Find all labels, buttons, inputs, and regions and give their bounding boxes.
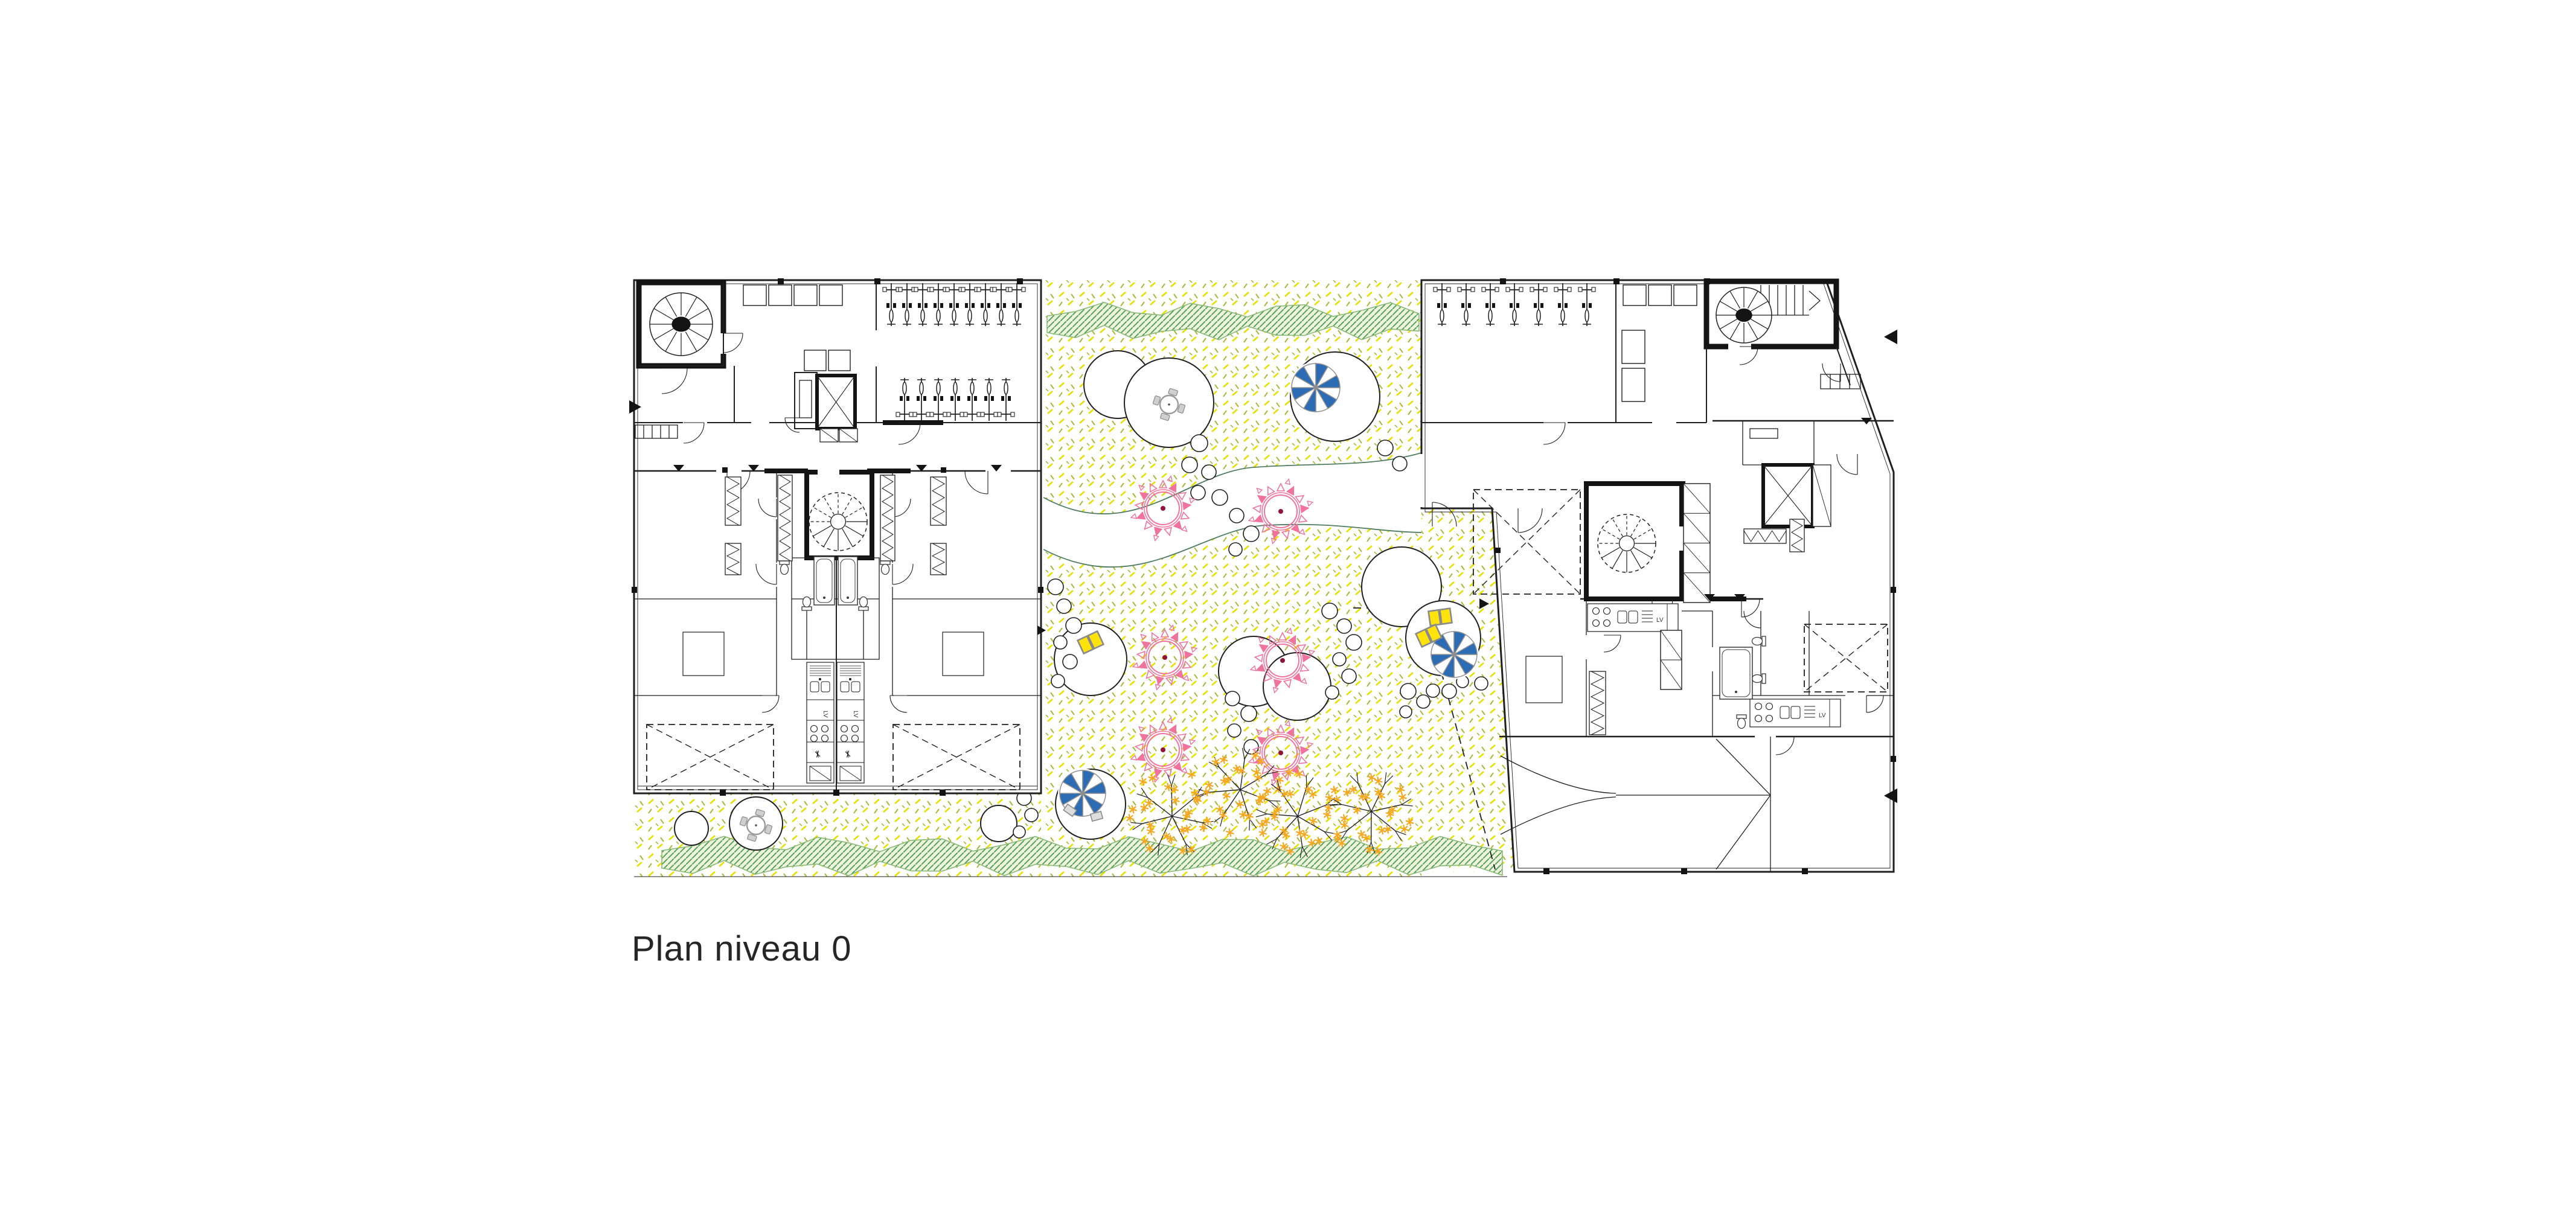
kitchen-icon: LV <box>1588 604 1678 632</box>
left-building: LVLV <box>632 278 1043 796</box>
elevator-icon <box>817 376 855 429</box>
bush-icon <box>1417 695 1430 708</box>
kitchen-icon: LV <box>1750 699 1841 727</box>
toilet-icon <box>780 561 789 575</box>
bush-icon <box>1337 619 1351 633</box>
spiral-staircase-icon <box>809 493 867 551</box>
bush-icon <box>1241 706 1257 721</box>
storage-box <box>1622 368 1645 401</box>
bed <box>1526 656 1562 703</box>
bush-icon <box>1013 826 1025 838</box>
bush-icon <box>1229 508 1244 523</box>
wardrobe-icon <box>1790 519 1804 552</box>
toilet-icon <box>1737 715 1746 729</box>
bush-icon <box>1325 686 1339 699</box>
parasol-icon <box>1290 362 1342 414</box>
page: LVLV <box>0 0 2576 1225</box>
storage-box <box>819 285 842 305</box>
bathtub-icon <box>1720 647 1752 699</box>
bush-icon <box>1377 440 1393 456</box>
kitchen-icon: LV <box>837 662 864 783</box>
bush-icon <box>1212 490 1228 505</box>
section-arrow-icon <box>1884 330 1897 344</box>
toilet-icon <box>880 561 890 575</box>
storage-box <box>743 285 766 305</box>
kitchen-label: LV <box>852 711 859 718</box>
bush-icon <box>1229 543 1242 556</box>
wardrobe-icon <box>1744 529 1786 543</box>
storage-box <box>769 285 792 305</box>
bed <box>943 632 984 676</box>
elevator-icon <box>1763 465 1813 526</box>
storage-box <box>1623 285 1646 305</box>
kitchen-icon: LV <box>807 662 834 783</box>
wardrobe-icon <box>931 543 946 575</box>
bush-icon <box>1225 691 1240 706</box>
spiral-staircase-icon <box>1598 514 1656 572</box>
bush-icon <box>1063 654 1077 669</box>
bush-icon <box>1392 456 1407 471</box>
toilet-icon <box>802 597 812 611</box>
wardrobe-icon <box>931 477 946 525</box>
bush-icon <box>1322 603 1338 619</box>
bush-icon <box>1025 808 1038 822</box>
bed <box>683 632 724 676</box>
bush-icon <box>1054 636 1067 649</box>
bush-icon <box>1051 674 1065 688</box>
bush-icon <box>1182 457 1197 473</box>
bush-icon <box>1400 706 1412 718</box>
bush-icon <box>1057 599 1071 613</box>
wardrobe-icon <box>725 543 741 575</box>
toilet-icon <box>1752 674 1766 683</box>
kitchen-label: LV <box>1656 617 1664 624</box>
bench-icon <box>1429 609 1452 626</box>
bush-icon <box>1191 485 1205 500</box>
bush-icon <box>1475 677 1488 690</box>
wardrobe-icon <box>1589 671 1606 735</box>
tree-canopy-icon <box>1263 653 1331 720</box>
wardrobe-icon <box>725 477 741 525</box>
bathtub-icon <box>814 557 835 605</box>
bush-icon <box>1346 635 1362 650</box>
storage-box <box>1648 285 1671 305</box>
storage-box <box>794 285 817 305</box>
tree-canopy-icon <box>674 811 708 845</box>
shelf-closet-icon <box>1684 484 1710 603</box>
wardrobe-icon <box>880 475 895 561</box>
kitchen-label: LV <box>822 711 828 718</box>
storage-box <box>1622 330 1645 363</box>
bush-icon <box>1342 669 1356 683</box>
storage-box <box>804 350 826 371</box>
bush-icon <box>1066 618 1081 633</box>
bush-icon <box>1191 435 1208 452</box>
bush-icon <box>1243 526 1259 542</box>
bush-icon <box>1400 683 1416 699</box>
storage-box <box>1674 285 1697 305</box>
bush-icon <box>1333 653 1346 666</box>
floor-plan-drawing: LVLV <box>626 273 1912 883</box>
storage-box <box>828 350 850 371</box>
bush-icon <box>1048 579 1063 595</box>
bush-icon <box>1228 724 1241 737</box>
bush-icon <box>1442 684 1456 699</box>
spiral-staircase-icon <box>1716 287 1772 343</box>
bush-icon <box>1202 465 1216 479</box>
toilet-icon <box>859 597 868 611</box>
spiral-staircase-icon <box>650 293 713 356</box>
plan-title: Plan niveau 0 <box>632 929 851 969</box>
bathtub-icon <box>838 557 857 605</box>
shelf-closet-icon <box>1661 630 1682 689</box>
wardrobe-icon <box>778 475 792 561</box>
toilet-icon <box>1752 636 1766 646</box>
kitchen-label: LV <box>1819 712 1826 719</box>
bush-icon <box>1426 684 1440 697</box>
tree-canopy-icon <box>981 805 1017 842</box>
